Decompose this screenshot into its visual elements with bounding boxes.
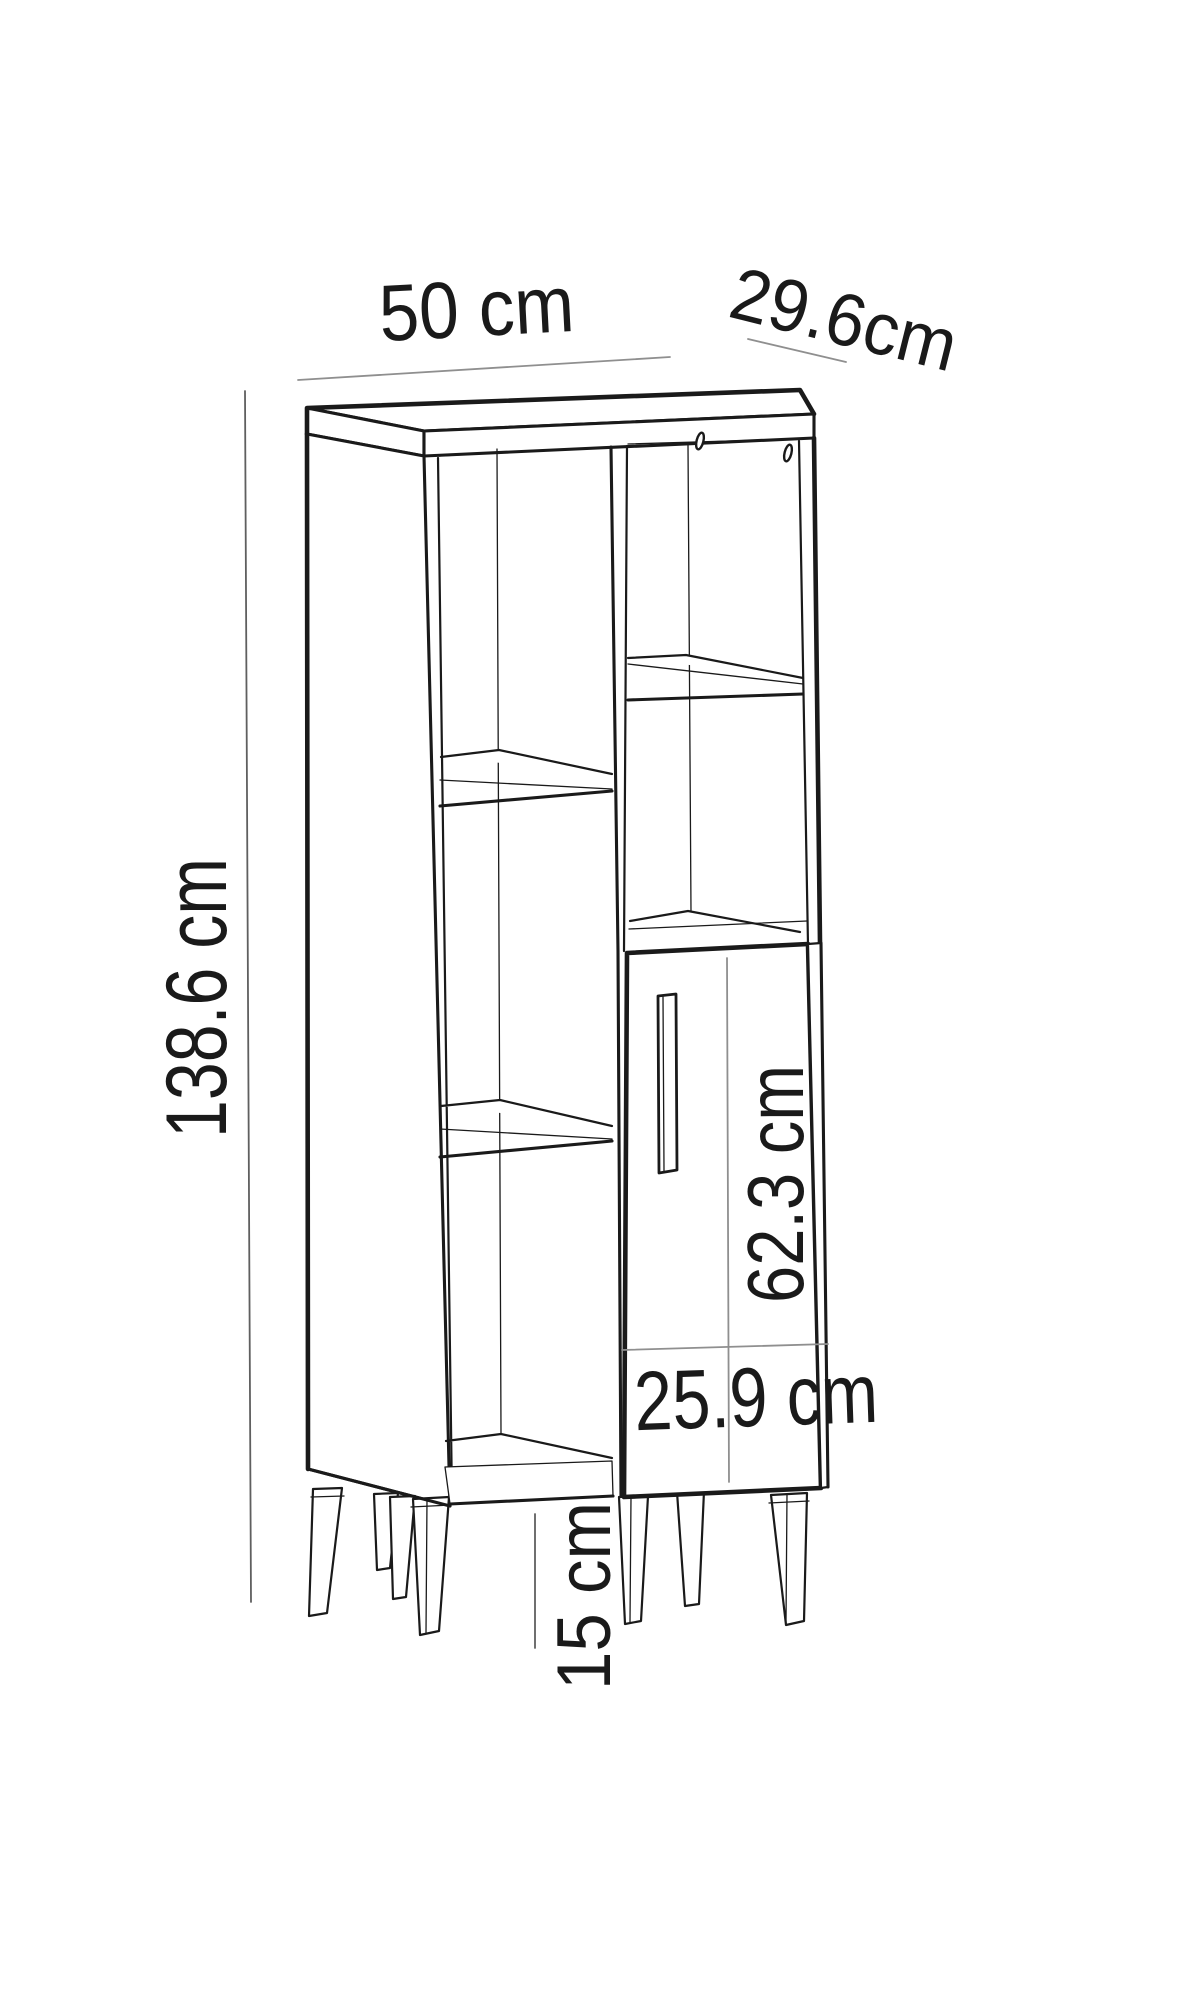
leg-front-right [771, 1493, 807, 1625]
right-side-outer-edge [814, 438, 820, 943]
right-cubby-interior-corner [688, 445, 691, 912]
width-label: 50 cm [377, 259, 576, 358]
leg-front-mid-left [390, 1496, 415, 1599]
left-shelf-upper [440, 750, 612, 806]
height-label: 138.6 cm [149, 858, 245, 1138]
leg-height-label: 15 cm [542, 1502, 627, 1690]
left-side-panel [307, 434, 450, 1506]
height-dimension-line [245, 391, 251, 1602]
width-dimension-line [298, 357, 670, 380]
depth-label: 29.6cm [723, 251, 966, 387]
door-height-label: 62.3 cm [731, 1065, 820, 1303]
left-shelf-lower [440, 1100, 612, 1157]
door-width-label: 25.9 cm [632, 1346, 879, 1448]
left-back-edge [307, 434, 308, 1469]
door-handle [658, 994, 677, 1173]
left-column-interior-corner [497, 449, 501, 1433]
middle-partition-right-edge [624, 446, 627, 951]
right-cubby-floor [629, 911, 807, 932]
middle-partition-left-edge [611, 447, 621, 1496]
diagram-page: 50 cm 29.6cm 138.6 cm 62.3 cm 25.9 cm 15… [0, 0, 1186, 2000]
back-panel-hole-right [783, 444, 794, 462]
cabinet-drawing [307, 390, 828, 1635]
leg-front-left [413, 1497, 449, 1635]
furniture-dimension-diagram: 50 cm 29.6cm 138.6 cm 62.3 cm 25.9 cm 15… [0, 0, 1186, 2000]
leg-back-left [309, 1488, 342, 1616]
right-cubby-shelf [628, 655, 803, 700]
leg-back-mid-right [677, 1491, 704, 1606]
